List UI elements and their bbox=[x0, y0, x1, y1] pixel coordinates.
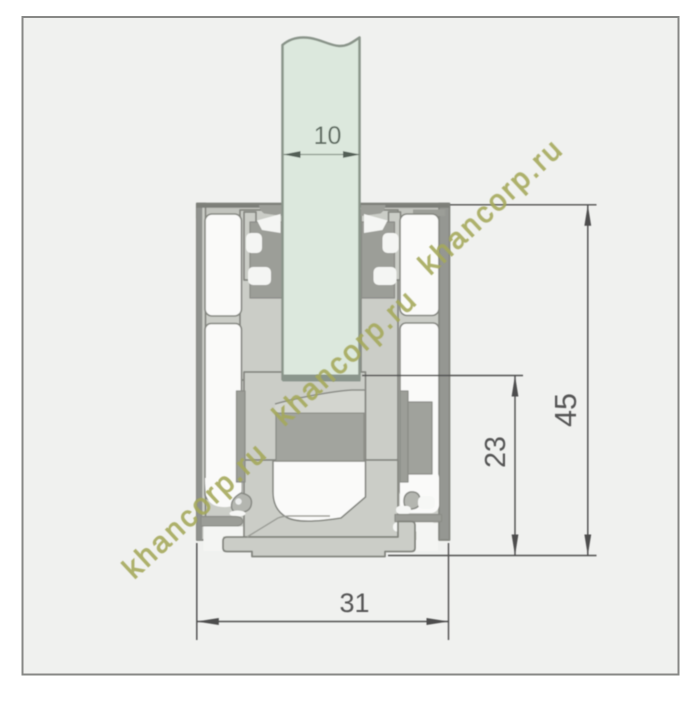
svg-text:45: 45 bbox=[549, 393, 583, 427]
svg-text:10: 10 bbox=[314, 122, 342, 150]
svg-text:23: 23 bbox=[480, 436, 512, 468]
svg-text:31: 31 bbox=[339, 588, 369, 618]
